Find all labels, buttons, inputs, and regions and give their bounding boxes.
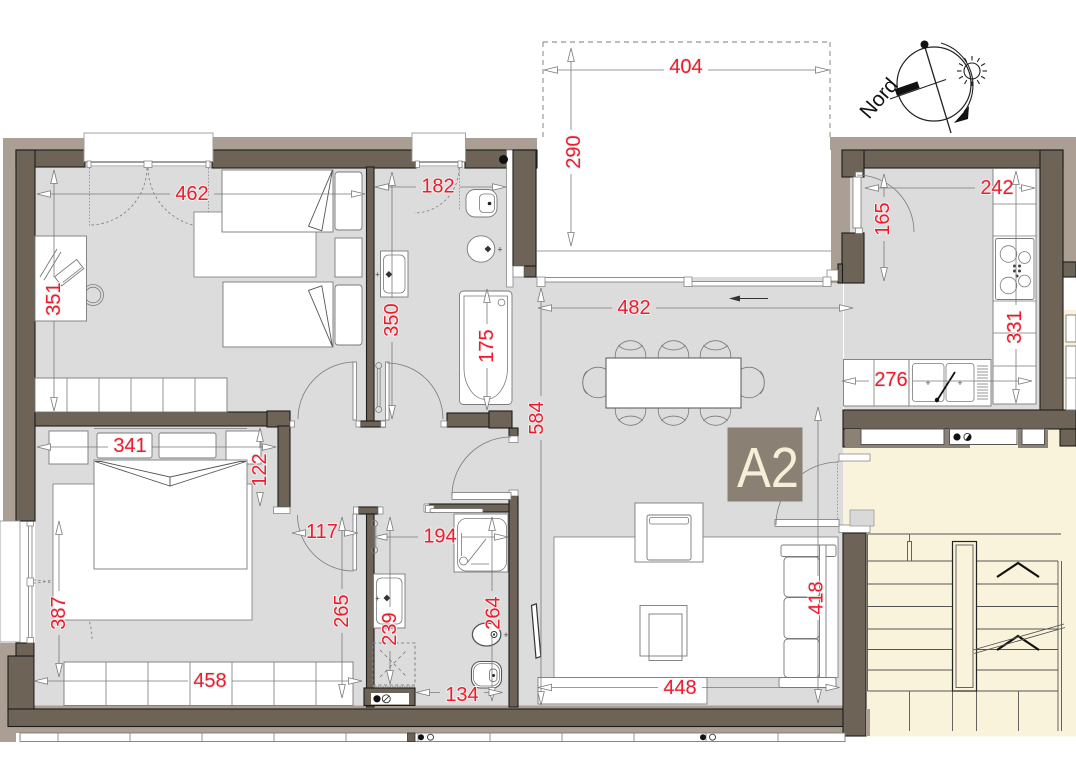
svg-text:165: 165	[872, 202, 894, 235]
svg-text:290: 290	[563, 135, 585, 168]
svg-text:182: 182	[421, 176, 454, 198]
svg-text:122: 122	[249, 453, 271, 486]
svg-text:239: 239	[379, 612, 401, 645]
svg-text:331: 331	[1004, 310, 1026, 343]
svg-text:387: 387	[48, 596, 70, 629]
svg-text:242: 242	[980, 177, 1013, 199]
svg-text:458: 458	[193, 670, 226, 692]
svg-text:276: 276	[874, 369, 907, 391]
svg-text:+: +	[375, 270, 380, 279]
svg-text:584: 584	[526, 401, 548, 434]
svg-text:117: 117	[306, 521, 338, 543]
svg-text:194: 194	[423, 526, 456, 548]
svg-text:448: 448	[663, 677, 696, 699]
svg-text:482: 482	[617, 297, 650, 319]
svg-text:341: 341	[113, 435, 146, 457]
svg-text:350: 350	[381, 303, 403, 336]
svg-text:+: +	[957, 378, 962, 388]
svg-text:+: +	[503, 630, 508, 640]
svg-text:265: 265	[331, 594, 353, 627]
svg-text:+: +	[497, 245, 502, 255]
svg-text:+: +	[925, 378, 930, 388]
svg-text:264: 264	[483, 596, 505, 629]
svg-text:A2: A2	[737, 436, 799, 500]
svg-text:404: 404	[669, 56, 702, 78]
svg-text:134: 134	[445, 684, 478, 706]
svg-text:418: 418	[806, 581, 828, 614]
svg-text:+: +	[375, 594, 380, 603]
svg-text:175: 175	[476, 329, 498, 362]
svg-text:351: 351	[43, 282, 65, 315]
svg-text:462: 462	[175, 183, 208, 205]
